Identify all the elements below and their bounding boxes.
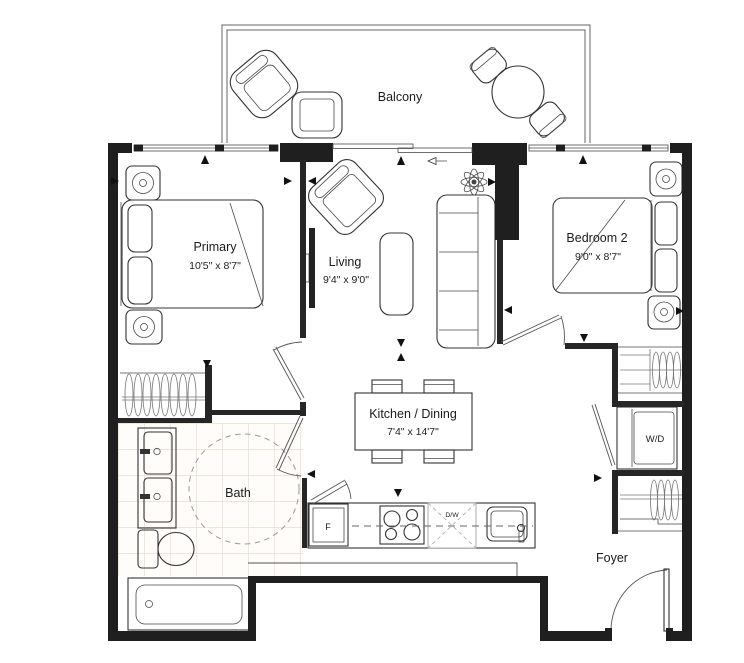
marker-icon: [394, 489, 402, 497]
wall-pier: [472, 143, 527, 165]
bath-label: Bath: [225, 486, 251, 500]
entry-door-leaf: [664, 569, 669, 631]
bedroom2-label: Bedroom 2: [566, 231, 627, 245]
lamp-icon: [656, 169, 676, 189]
faucet-icon: [140, 449, 150, 454]
kitchen-dining-dimensions: 7'4" x 14'7": [387, 426, 439, 438]
bedroom2-closet: [618, 347, 682, 393]
marker-icon: [397, 156, 405, 165]
dining-chair: [372, 450, 402, 463]
dining-chair: [372, 380, 402, 393]
washer-dryer-label: W/D: [646, 434, 665, 445]
primary-nightstand-top: [126, 166, 160, 200]
primary-bedroom: Primary 10'5" x 8'7": [120, 166, 263, 416]
primary-window: [132, 143, 280, 153]
balcony: Balcony: [222, 25, 590, 147]
marker-icon: [397, 353, 405, 361]
bedroom2-door: [501, 315, 564, 345]
fridge-label: F: [325, 522, 331, 532]
lamp-icon: [134, 317, 155, 338]
balcony-round-table: [468, 46, 567, 139]
dining-table: [355, 380, 472, 463]
washer-dryer-closet: W/D: [592, 404, 677, 469]
coffee-table: [380, 233, 413, 315]
doors: [273, 315, 564, 476]
balcony-outline-inner: [227, 30, 585, 147]
floor-plan-svg: Balcony: [0, 0, 744, 663]
bedroom2-nightstand-top: [650, 162, 682, 196]
marker-icon: [284, 177, 292, 185]
stove: [380, 506, 424, 544]
marker-icon: [504, 306, 512, 314]
floor-plan: Balcony: [0, 0, 744, 663]
bathtub: [128, 578, 250, 630]
marker-icon: [488, 178, 496, 186]
dining-chair: [424, 380, 454, 393]
primary-nightstand-bottom: [126, 310, 162, 344]
sofa: [437, 195, 495, 348]
kitchen-sink: [487, 507, 527, 542]
lamp-icon: [654, 302, 674, 322]
marker-icon: [308, 177, 316, 185]
kitchen-dining-label: Kitchen / Dining: [369, 407, 457, 421]
primary-dimensions: 10'5" x 8'7": [189, 260, 241, 272]
marker-icon: [580, 334, 588, 342]
marker-icon: [594, 474, 602, 482]
foyer: W/D Foyer: [592, 404, 682, 640]
foyer-label: Foyer: [596, 551, 628, 565]
dining-chair: [424, 450, 454, 463]
primary-bed: [121, 200, 263, 308]
dishwasher-label: D/W: [445, 512, 459, 519]
marker-icon: [201, 155, 209, 164]
marker-icon: [307, 470, 315, 478]
drain-icon: [146, 601, 153, 608]
marker-icon: [579, 155, 587, 164]
living-label: Living: [329, 255, 362, 269]
balcony-side-table: [292, 92, 342, 138]
bedroom2-nightstand-bottom: [648, 296, 680, 329]
faucet-icon: [140, 494, 150, 499]
wd-door-leaf: [592, 404, 615, 466]
marker-icon: [397, 339, 405, 347]
primary-door: [273, 342, 304, 400]
bedroom2-dimensions: 9'0" x 8'7": [575, 251, 621, 263]
fridge: F: [309, 504, 348, 546]
entry-door: [605, 569, 673, 640]
entry-door-swing: [611, 570, 667, 631]
wall-pier: [280, 143, 333, 162]
primary-closet: [120, 373, 205, 416]
bedroom2-bed: [553, 198, 677, 293]
balcony-label: Balcony: [378, 90, 423, 104]
plant-icon: [461, 169, 487, 195]
primary-label: Primary: [193, 240, 237, 254]
fridge-door-swing: [311, 480, 351, 504]
tv-icon: [305, 228, 315, 308]
living-room: Living 9'4" x 9'0": [304, 155, 495, 348]
foyer-closet: [618, 480, 682, 531]
bedroom2-window: [527, 143, 670, 153]
living-armchair: [304, 155, 389, 240]
living-dimensions: 9'4" x 9'0": [323, 274, 369, 286]
lamp-icon: [133, 173, 154, 194]
